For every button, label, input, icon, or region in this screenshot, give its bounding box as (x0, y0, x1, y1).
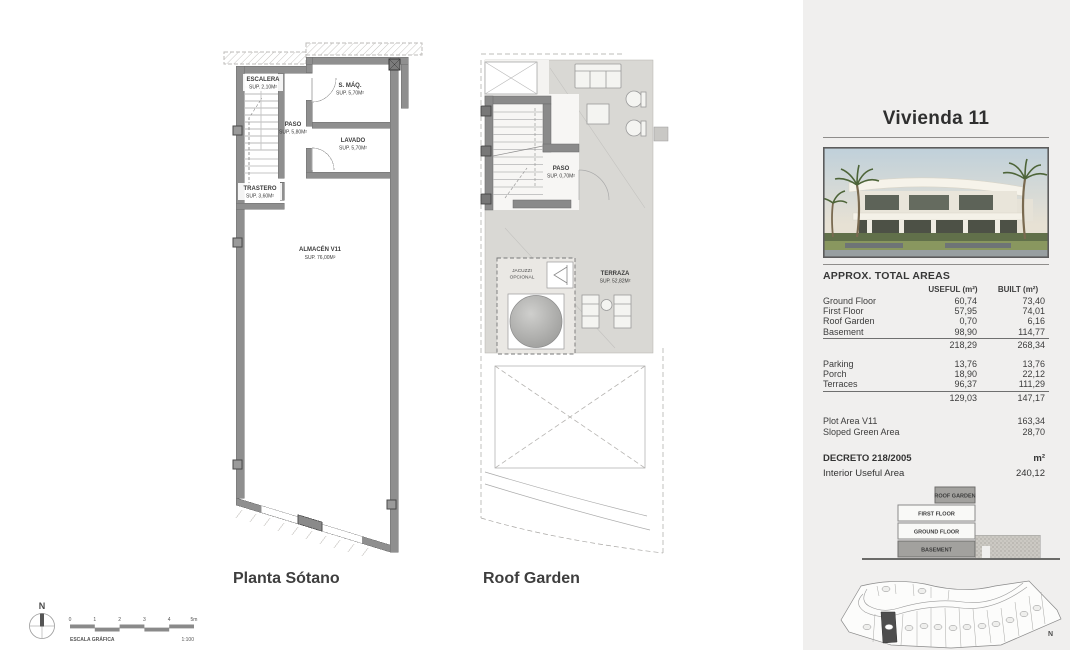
room-paso-label: PASO (285, 122, 302, 128)
scale-label: ESCALA GRÁFICA (70, 636, 115, 643)
stack-roof-label: ROOF GARDEN (934, 494, 975, 500)
terrain-notch (982, 546, 990, 558)
stack-basement-label: BASEMENT (921, 548, 953, 554)
unit-title: Vivienda 11 (823, 108, 1049, 130)
plan-sheet: ESCALERA SUP. 2,10M² S. MÁQ. SUP. 5,70M²… (0, 0, 1070, 650)
basement-room-labels: ESCALERA SUP. 2,10M² S. MÁQ. SUP. 5,70M²… (238, 74, 367, 261)
room-paso-sup: SUP. 5,80M² (279, 130, 307, 136)
total-spacer (823, 340, 919, 350)
room-terraza-sup: SUP. 52,82M² (600, 279, 631, 285)
areas-heading: APPROX. TOTAL AREAS (823, 270, 1049, 282)
siteplan-north-label: N (1048, 631, 1053, 638)
room-lavado-label: LAVADO (341, 138, 366, 144)
room-roof-paso-sup: SUP. 0,70M² (547, 174, 575, 180)
totals-rule (823, 391, 1049, 392)
col-header-useful: USEFUL (m²) (919, 284, 987, 296)
green-area-value: 28,70 (983, 427, 1049, 438)
green-area-label: Sloped Green Area (823, 427, 983, 438)
interior-label: Interior Useful Area (823, 468, 983, 479)
north-label: N (39, 601, 46, 611)
room-smaq-sup: SUP. 5,70M² (336, 91, 364, 97)
areas-grid: USEFUL (m²) BUILT (m²) Ground Floor 60,7… (823, 284, 1049, 403)
scale-tick-1: 1 (93, 617, 96, 623)
total-spacer (823, 393, 919, 403)
decreto-block: DECRETO 218/2005 m² Interior Useful Area… (823, 453, 1049, 479)
row-useful: 57,95 (919, 306, 987, 316)
room-trastero-label: TRASTERO (244, 186, 277, 192)
row-label: Basement (823, 327, 919, 337)
room-terraza-label: TERRAZA (601, 271, 630, 277)
row-label: Parking (823, 359, 919, 369)
room-escalera-label: ESCALERA (246, 77, 280, 83)
row-label: Terraces (823, 379, 919, 389)
col-header-built: BUILT (m²) (987, 284, 1049, 296)
room-almacen-sup: SUP. 76,00M² (305, 255, 336, 261)
scale-tick-2: 2 (118, 617, 121, 623)
col-spacer (823, 284, 919, 296)
row-useful: 98,90 (919, 327, 987, 337)
row-useful: 0,70 (919, 316, 987, 326)
row-label: First Floor (823, 306, 919, 316)
jacuzzi-optional: JACUZZI OPCIONAL (497, 258, 575, 354)
door-swings (280, 78, 336, 200)
row-label: Roof Garden (823, 316, 919, 326)
row-built: 114,77 (987, 327, 1049, 337)
plot-area-label: Plot Area V11 (823, 416, 983, 427)
graphic-scale: 0 1 2 3 4 5m ESCALA GRÁFICA 1:100 (69, 617, 198, 643)
north-compass-icon: N (30, 601, 55, 639)
site-plan: N (833, 572, 1068, 650)
areas-table: USEFUL (m²) BUILT (m²) Ground Floor 60,7… (823, 284, 1049, 479)
scale-tick-3: 3 (143, 617, 146, 623)
scale-tick-4: 4 (168, 617, 171, 623)
row-built: 22,12 (987, 369, 1049, 379)
basement-walls (236, 57, 408, 552)
scale-tick-0: 0 (69, 617, 72, 623)
row-useful: 13,76 (919, 359, 987, 369)
row-useful: 96,37 (919, 379, 987, 389)
basement-stairs (244, 80, 278, 190)
photo-rule (823, 264, 1049, 265)
row-built: 73,40 (987, 296, 1049, 306)
row-label: Ground Floor (823, 296, 919, 306)
roof-garden-floor-plan: JACUZZI OPCIONAL PASO SUP. 0,70M² TERRAZ… (475, 48, 670, 558)
decreto-label: DECRETO 218/2005 (823, 453, 983, 464)
total2-built: 147,17 (987, 393, 1049, 403)
row-built: 74,01 (987, 306, 1049, 316)
row-label: Porch (823, 369, 919, 379)
basement-floor-plan: ESCALERA SUP. 2,10M² S. MÁQ. SUP. 5,70M²… (222, 40, 427, 565)
scale-bar: N 0 1 2 3 4 5m ESCALA GRÁFICA 1:100 (8, 596, 218, 648)
row-useful: 60,74 (919, 296, 987, 306)
ground-line (862, 558, 1060, 560)
floor-stack-diagram: ROOF GARDEN FIRST FLOOR GROUND FLOOR BAS… (860, 482, 1065, 564)
room-escalera-sup: SUP. 2,10M² (249, 85, 277, 91)
room-smaq-label: S. MÁQ. (338, 82, 361, 89)
roof-void-area (485, 366, 650, 530)
jacuzzi-label-2: OPCIONAL (510, 275, 535, 281)
totals-rule (823, 338, 1049, 339)
scale-tick-5: 5m (191, 617, 198, 623)
plot-area-value: 163,34 (983, 416, 1049, 427)
room-almacen-label: ALMACÉN V11 (299, 245, 342, 253)
building-photo (823, 147, 1049, 258)
roof-plan-title: Roof Garden (483, 570, 580, 588)
group-gap (823, 350, 1049, 359)
row-built: 111,29 (987, 379, 1049, 389)
scale-ratio: 1:100 (181, 637, 194, 643)
room-lavado-sup: SUP. 5,70M² (339, 146, 367, 152)
stack-first-label: FIRST FLOOR (918, 512, 955, 518)
jacuzzi-label-1: JACUZZI (512, 268, 532, 274)
interior-value: 240,12 (983, 468, 1049, 479)
corner-column (389, 59, 400, 70)
basement-plan-title: Planta Sótano (233, 570, 340, 588)
decreto-unit: m² (983, 453, 1049, 464)
main-building (849, 178, 1023, 240)
room-roof-paso-label: PASO (553, 166, 570, 172)
title-rule (823, 137, 1049, 138)
row-built: 13,76 (987, 359, 1049, 369)
skylight (485, 62, 537, 94)
row-built: 6,16 (987, 316, 1049, 326)
plot-areas: Plot Area V11 163,34 Sloped Green Area 2… (823, 416, 1049, 438)
basement-south-facade (236, 498, 390, 556)
room-trastero-sup: SUP. 3,60M² (246, 194, 274, 200)
total1-useful: 218,29 (919, 340, 987, 350)
total1-built: 268,34 (987, 340, 1049, 350)
total2-useful: 129,03 (919, 393, 987, 403)
row-useful: 18,90 (919, 369, 987, 379)
stack-ground-label: GROUND FLOOR (914, 530, 959, 536)
